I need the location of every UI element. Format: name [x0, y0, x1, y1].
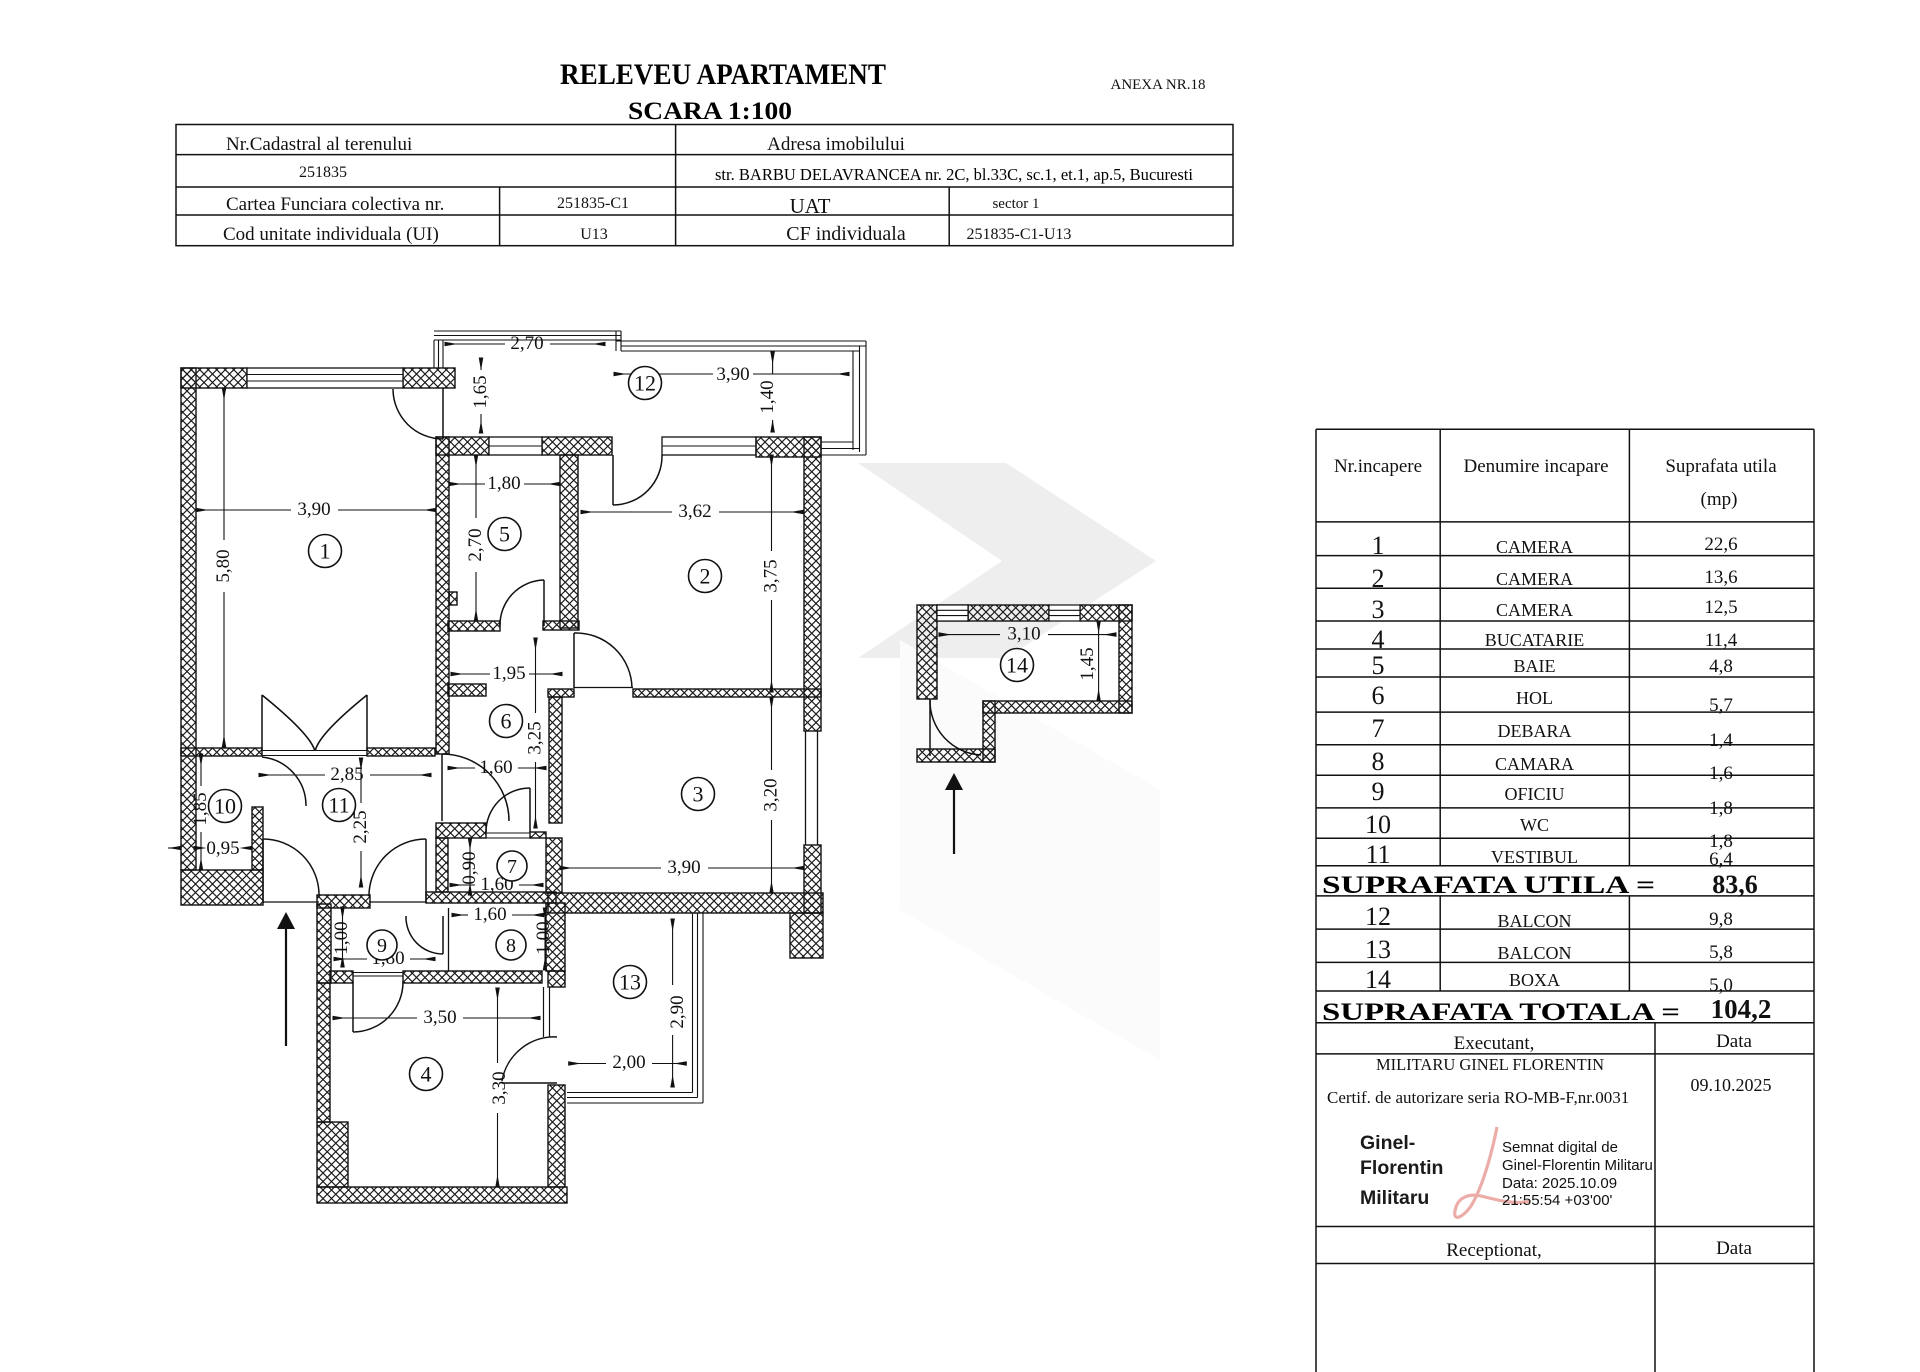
svg-text:Adresa imobilului: Adresa imobilului	[767, 134, 905, 155]
svg-text:7: 7	[1372, 714, 1385, 743]
svg-text:13: 13	[619, 969, 641, 994]
svg-text:1,85: 1,85	[190, 792, 211, 825]
svg-text:1,00: 1,00	[331, 921, 352, 954]
svg-text:Suprafata utila: Suprafata utila	[1665, 456, 1777, 477]
svg-text:9: 9	[1372, 777, 1385, 806]
svg-text:3,25: 3,25	[525, 721, 546, 754]
svg-text:1,40: 1,40	[757, 380, 778, 413]
svg-text:1,45: 1,45	[1077, 647, 1098, 680]
svg-text:5,0: 5,0	[1709, 975, 1733, 996]
svg-text:10: 10	[1365, 810, 1391, 839]
svg-text:13: 13	[1365, 935, 1391, 964]
svg-text:3,90: 3,90	[297, 499, 330, 520]
svg-text:4,8: 4,8	[1709, 656, 1733, 677]
svg-text:HOL: HOL	[1516, 688, 1553, 708]
svg-text:4: 4	[421, 1061, 432, 1086]
svg-text:2: 2	[700, 563, 711, 588]
svg-text:CF individuala: CF individuala	[786, 223, 906, 245]
svg-text:9: 9	[377, 935, 387, 957]
svg-text:5: 5	[1372, 651, 1385, 680]
svg-text:09.10.2025: 09.10.2025	[1691, 1075, 1772, 1095]
svg-text:ANEXA NR.18: ANEXA NR.18	[1110, 77, 1205, 93]
svg-text:1: 1	[1372, 531, 1385, 560]
svg-text:8: 8	[506, 935, 516, 957]
svg-text:BOXA: BOXA	[1509, 970, 1560, 990]
svg-text:5,80: 5,80	[213, 549, 234, 582]
svg-text:Executant,: Executant,	[1454, 1033, 1535, 1054]
svg-text:7: 7	[507, 856, 517, 878]
svg-text:3,62: 3,62	[678, 501, 711, 522]
svg-text:2,85: 2,85	[330, 764, 363, 785]
svg-text:4: 4	[1372, 625, 1385, 654]
svg-text:3,75: 3,75	[761, 559, 782, 592]
svg-text:6: 6	[1372, 681, 1385, 710]
svg-text:12,5: 12,5	[1704, 597, 1737, 618]
svg-text:SCARA 1:100: SCARA 1:100	[628, 98, 792, 125]
svg-text:DEBARA: DEBARA	[1497, 721, 1571, 741]
svg-text:11: 11	[328, 792, 349, 817]
svg-text:3: 3	[1372, 595, 1385, 624]
svg-text:14: 14	[1006, 652, 1028, 677]
svg-text:22,6: 22,6	[1704, 534, 1737, 555]
svg-text:OFICIU: OFICIU	[1504, 784, 1564, 804]
svg-text:CAMERA: CAMERA	[1496, 600, 1573, 620]
svg-text:2,00: 2,00	[612, 1052, 645, 1073]
svg-text:Data: Data	[1716, 1031, 1752, 1052]
svg-text:8: 8	[1372, 747, 1385, 776]
svg-text:2,90: 2,90	[667, 995, 688, 1028]
svg-text:6: 6	[501, 708, 512, 733]
svg-text:2,25: 2,25	[350, 810, 371, 843]
svg-text:251835: 251835	[299, 164, 347, 181]
svg-text:BUCATARIE: BUCATARIE	[1485, 630, 1585, 650]
svg-text:Data: Data	[1716, 1238, 1752, 1259]
svg-text:SUPRAFATA TOTALA =: SUPRAFATA TOTALA =	[1322, 999, 1680, 1026]
svg-text:(mp): (mp)	[1701, 489, 1738, 510]
svg-text:1,6: 1,6	[1709, 763, 1733, 784]
svg-text:9,8: 9,8	[1709, 909, 1733, 930]
svg-text:1,4: 1,4	[1709, 730, 1733, 751]
svg-text:3,30: 3,30	[489, 1071, 510, 1104]
svg-text:3,10: 3,10	[1007, 624, 1040, 645]
svg-text:Denumire incapare: Denumire incapare	[1463, 456, 1608, 477]
svg-text:BALCON: BALCON	[1497, 943, 1571, 963]
svg-text:U13: U13	[580, 226, 608, 243]
svg-text:251835-C1: 251835-C1	[557, 195, 629, 212]
svg-text:5,8: 5,8	[1709, 942, 1733, 963]
svg-text:1,80: 1,80	[487, 473, 520, 494]
svg-text:1: 1	[320, 538, 331, 563]
svg-text:1,95: 1,95	[492, 663, 525, 684]
svg-text:sector 1: sector 1	[992, 196, 1039, 212]
svg-text:2: 2	[1372, 564, 1385, 593]
svg-text:BAIE: BAIE	[1514, 656, 1556, 676]
svg-text:0,95: 0,95	[206, 838, 239, 859]
svg-text:str. BARBU DELAVRANCEA nr. 2C,: str. BARBU DELAVRANCEA nr. 2C, bl.33C, s…	[715, 165, 1193, 184]
svg-text:CAMERA: CAMERA	[1496, 569, 1573, 589]
svg-text:Nr.Cadastral al terenului: Nr.Cadastral al terenului	[226, 134, 412, 155]
svg-text:Semnat digital de: Semnat digital de	[1502, 1139, 1618, 1156]
svg-text:SUPRAFATA UTILA =: SUPRAFATA UTILA =	[1322, 872, 1655, 899]
svg-text:1,60: 1,60	[473, 904, 506, 925]
svg-text:Receptionat,: Receptionat,	[1446, 1240, 1542, 1261]
svg-text:83,6: 83,6	[1712, 870, 1758, 899]
svg-text:13,6: 13,6	[1704, 567, 1737, 588]
svg-text:VESTIBUL: VESTIBUL	[1491, 847, 1578, 867]
svg-text:Cartea Funciara colectiva nr.: Cartea Funciara colectiva nr.	[226, 194, 444, 215]
svg-text:Nr.incapere: Nr.incapere	[1334, 456, 1422, 477]
svg-text:WC: WC	[1520, 815, 1549, 835]
svg-text:Florentin: Florentin	[1360, 1157, 1443, 1179]
svg-text:3,90: 3,90	[667, 857, 700, 878]
svg-text:CAMARA: CAMARA	[1495, 754, 1574, 774]
svg-text:Data: 2025.10.09: Data: 2025.10.09	[1502, 1175, 1617, 1192]
svg-text:UAT: UAT	[790, 194, 831, 218]
svg-text:2,70: 2,70	[510, 333, 543, 354]
svg-text:MILITARU GINEL FLORENTIN: MILITARU GINEL FLORENTIN	[1376, 1055, 1604, 1074]
svg-text:6,4: 6,4	[1709, 849, 1733, 870]
svg-text:Militaru: Militaru	[1360, 1187, 1429, 1209]
svg-text:3,50: 3,50	[423, 1007, 456, 1028]
svg-text:Ginel-: Ginel-	[1360, 1132, 1415, 1154]
svg-text:3: 3	[693, 781, 704, 806]
svg-text:Certif. de autorizare seria RO: Certif. de autorizare seria RO-MB-F,nr.0…	[1327, 1088, 1629, 1107]
svg-text:104,2: 104,2	[1711, 994, 1772, 1024]
svg-text:10: 10	[214, 793, 236, 818]
svg-text:CAMERA: CAMERA	[1496, 537, 1573, 557]
svg-text:5,7: 5,7	[1709, 695, 1733, 716]
svg-text:RELEVEU APARTAMENT: RELEVEU APARTAMENT	[560, 58, 886, 91]
svg-text:2,70: 2,70	[465, 528, 486, 561]
svg-text:12: 12	[1365, 902, 1391, 931]
svg-text:21:55:54 +03'00': 21:55:54 +03'00'	[1502, 1192, 1613, 1209]
svg-text:12: 12	[634, 370, 656, 395]
svg-text:11: 11	[1365, 840, 1390, 869]
svg-text:251835-C1-U13: 251835-C1-U13	[967, 226, 1072, 243]
svg-text:3,90: 3,90	[716, 364, 749, 385]
svg-text:1,8: 1,8	[1709, 798, 1733, 819]
svg-text:3,20: 3,20	[761, 778, 782, 811]
svg-text:BALCON: BALCON	[1497, 911, 1571, 931]
svg-text:5: 5	[499, 521, 510, 546]
svg-text:0,90: 0,90	[459, 851, 480, 884]
svg-text:14: 14	[1365, 965, 1391, 994]
svg-text:Cod unitate individuala (UI): Cod unitate individuala (UI)	[223, 224, 439, 245]
svg-text:11,4: 11,4	[1705, 630, 1738, 651]
svg-text:1,00: 1,00	[533, 921, 554, 954]
svg-text:1,60: 1,60	[479, 757, 512, 778]
svg-text:1,65: 1,65	[470, 375, 491, 408]
svg-text:Ginel-Florentin Militaru: Ginel-Florentin Militaru	[1502, 1157, 1653, 1174]
